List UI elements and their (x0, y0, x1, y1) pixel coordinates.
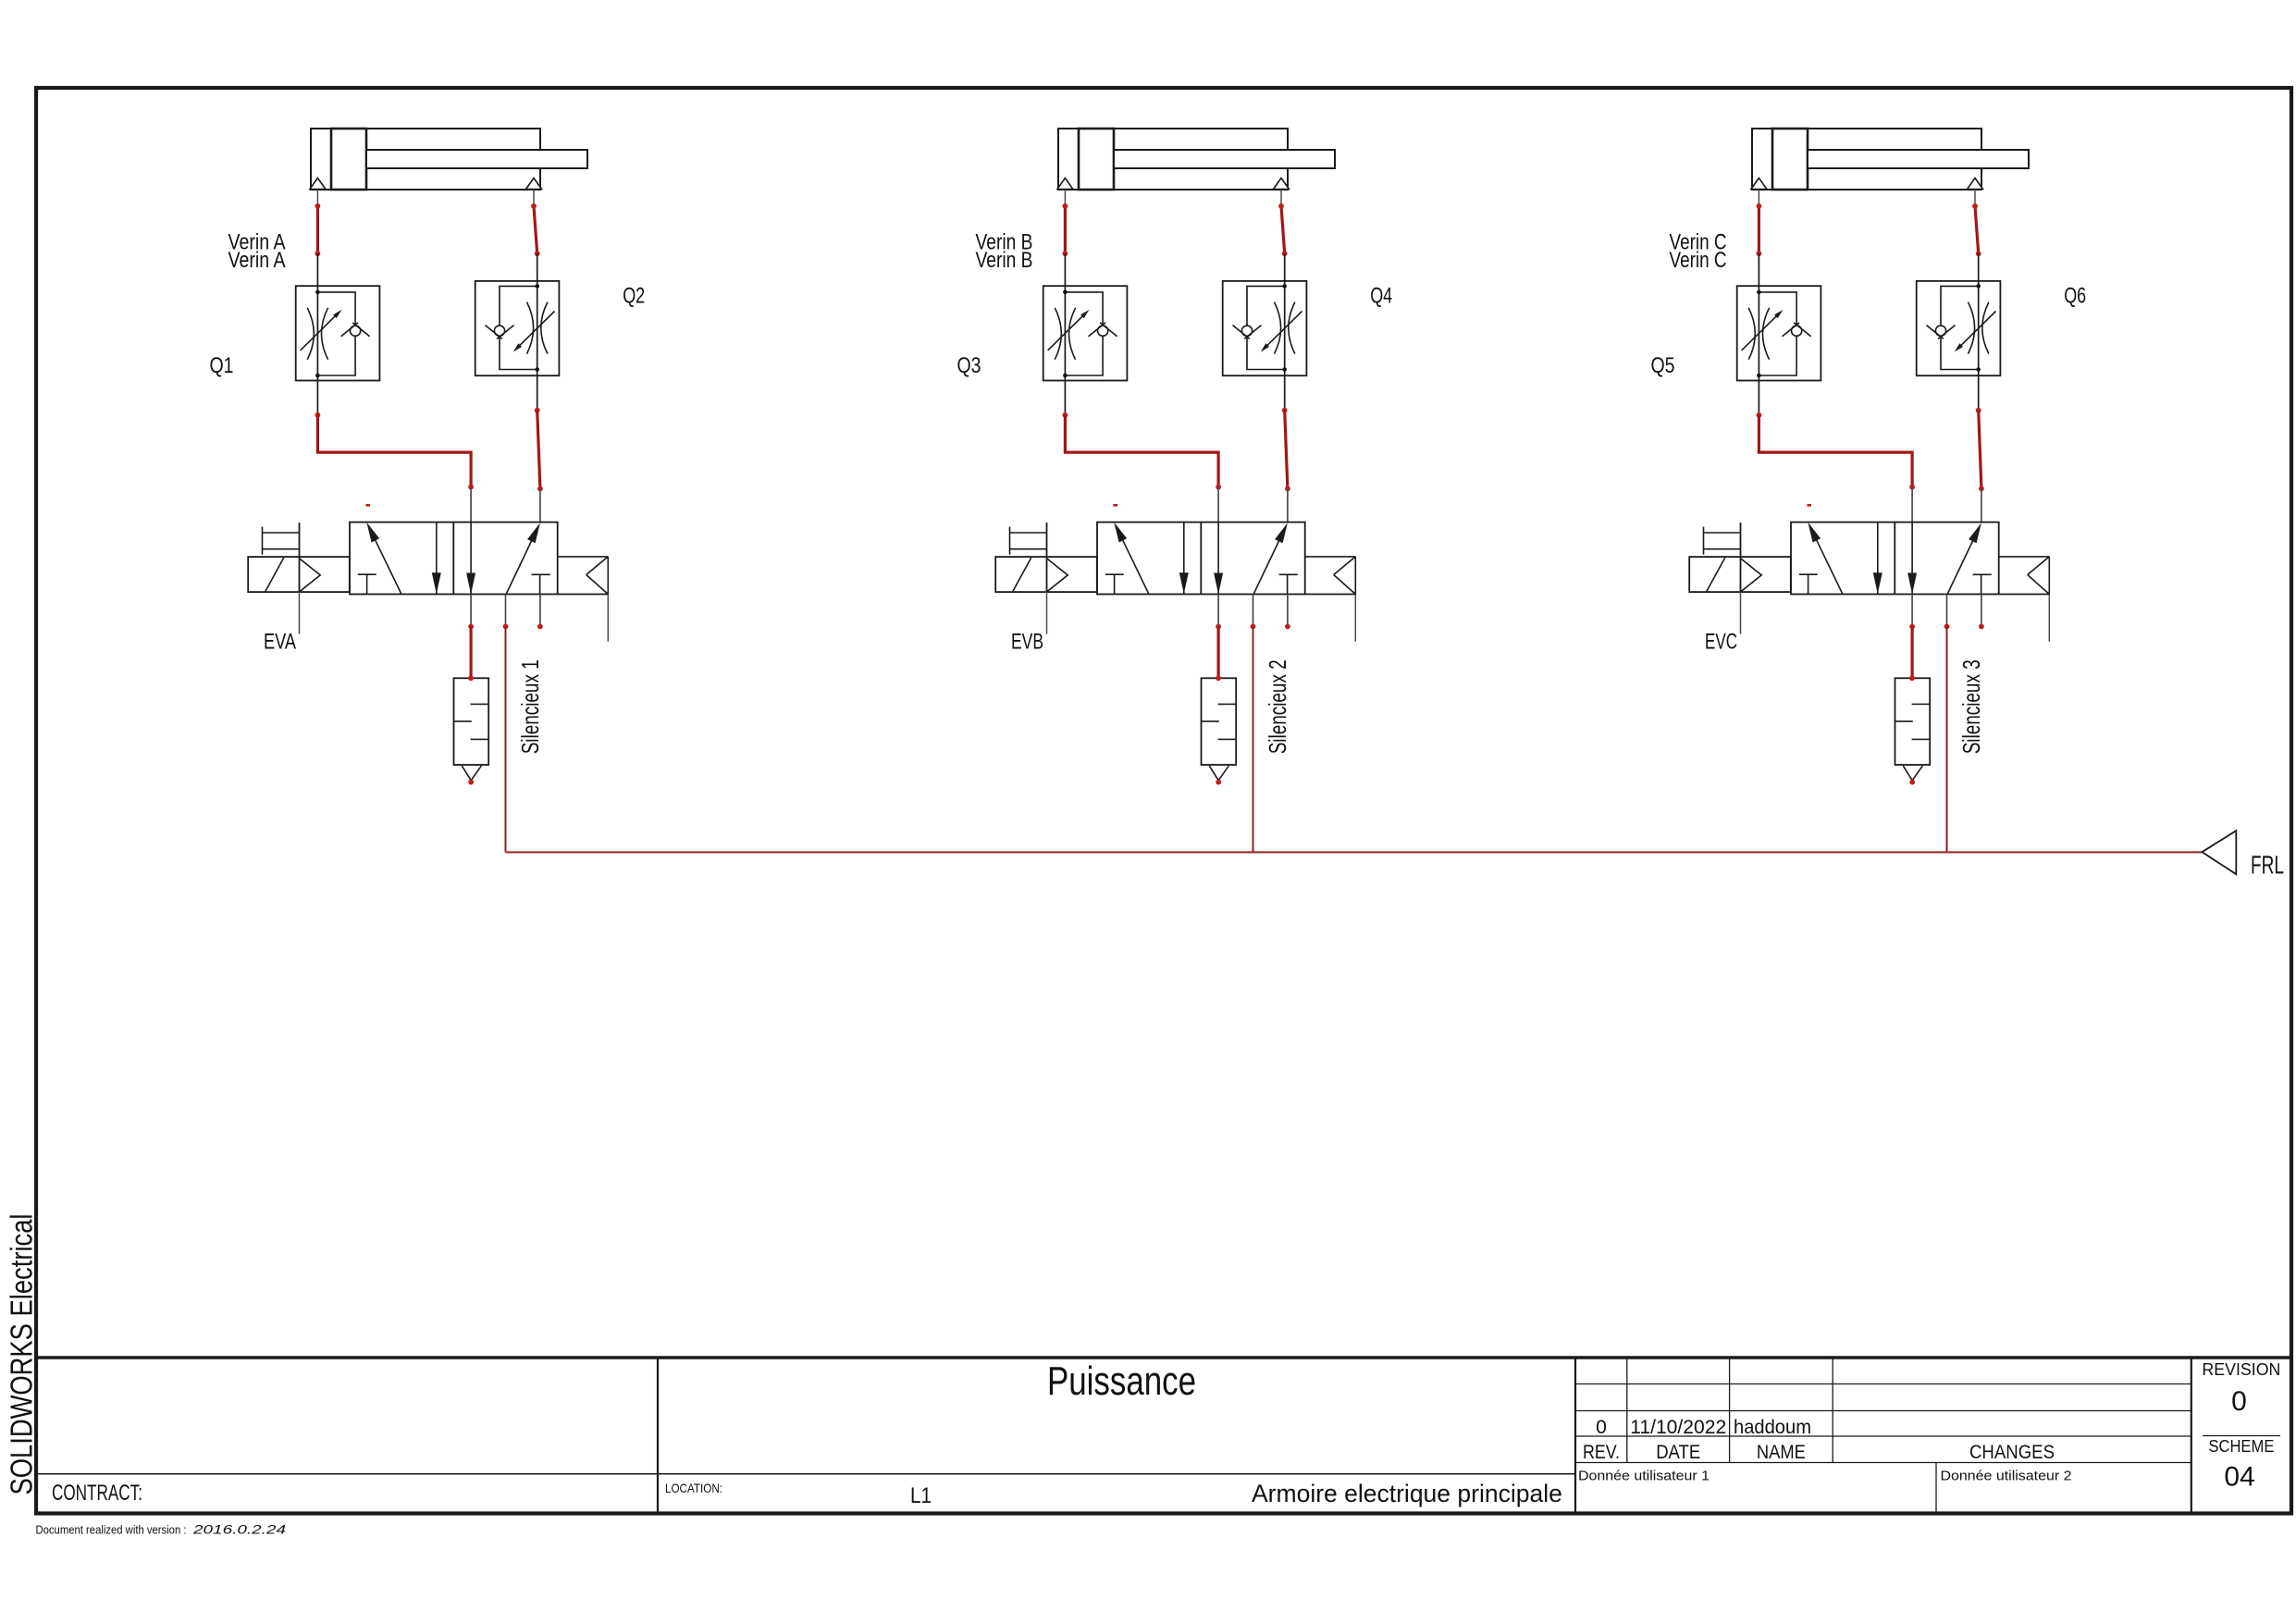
svg-text:EVA: EVA (264, 629, 296, 654)
svg-text:Donnée utilisateur 2: Donnée utilisateur 2 (1941, 1469, 2072, 1484)
svg-text:FRL: FRL (2251, 851, 2284, 879)
svg-text:Verin B: Verin B (976, 248, 1033, 273)
svg-text:Q5: Q5 (1651, 353, 1675, 378)
svg-text:Puissance: Puissance (1047, 1359, 1196, 1404)
svg-text:11/10/2022: 11/10/2022 (1630, 1417, 1726, 1438)
svg-text:DATE: DATE (1656, 1442, 1700, 1463)
svg-text:CHANGES: CHANGES (1969, 1442, 2055, 1463)
svg-text:Donnée utilisateur 1: Donnée utilisateur 1 (1578, 1469, 1710, 1484)
svg-text:SCHEME: SCHEME (2208, 1437, 2274, 1456)
svg-text:Q4: Q4 (1370, 283, 1392, 308)
svg-text:REV.: REV. (1583, 1442, 1620, 1463)
svg-text:SOLIDWORKS Electrical: SOLIDWORKS Electrical (5, 1214, 39, 1495)
svg-text:Verin C: Verin C (1670, 248, 1727, 273)
svg-text:CONTRACT:: CONTRACT: (52, 1481, 142, 1506)
svg-text:L1: L1 (910, 1483, 932, 1508)
svg-text:Q6: Q6 (2064, 283, 2086, 308)
svg-text:Q2: Q2 (623, 283, 645, 308)
svg-text:Silencieux 1: Silencieux 1 (516, 659, 544, 754)
svg-text:04: 04 (2224, 1462, 2254, 1493)
svg-text:REVISION: REVISION (2202, 1360, 2280, 1379)
svg-text:Document realized with version: Document realized with version : (36, 1524, 187, 1537)
svg-text:NAME: NAME (1757, 1442, 1806, 1463)
svg-text:Verin A: Verin A (228, 248, 286, 273)
svg-text:Silencieux 2: Silencieux 2 (1264, 659, 1291, 754)
svg-text:Armoire electrique principale: Armoire electrique principale (1252, 1480, 1562, 1507)
svg-text:EVB: EVB (1011, 629, 1043, 654)
svg-text:2016.0.2.24: 2016.0.2.24 (192, 1522, 287, 1537)
svg-text:LOCATION:: LOCATION: (665, 1481, 722, 1495)
svg-text:Silencieux 3: Silencieux 3 (1957, 659, 1985, 754)
svg-text:haddoum: haddoum (1734, 1417, 1811, 1438)
svg-text:Q3: Q3 (957, 353, 981, 378)
svg-text:0: 0 (2231, 1386, 2247, 1417)
svg-text:Q1: Q1 (210, 353, 234, 378)
svg-text:EVC: EVC (1705, 629, 1737, 654)
svg-text:0: 0 (1596, 1417, 1607, 1438)
